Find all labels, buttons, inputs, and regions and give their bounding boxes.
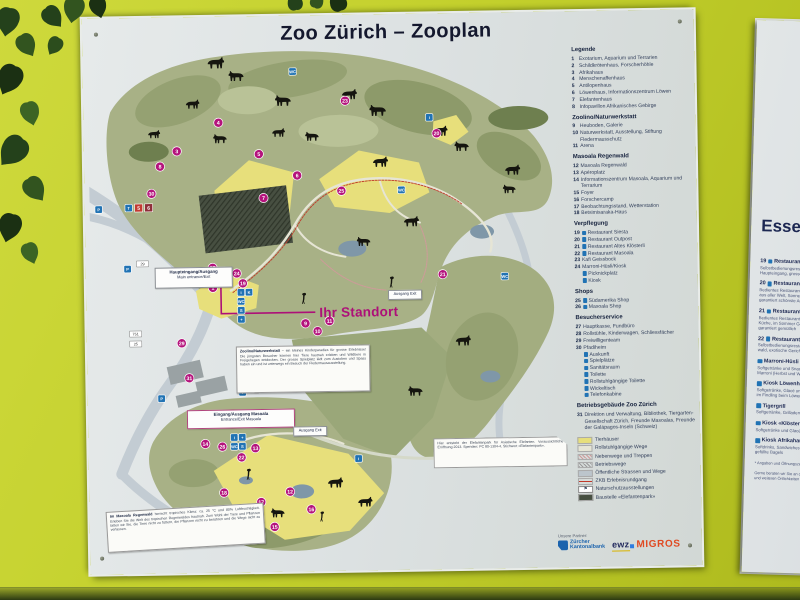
legend-item-label: Telefonkabine (590, 391, 698, 399)
side-sign-item-icon (766, 336, 771, 341)
legend-item: 14Informationszentrum Masoala, Aquarium … (573, 175, 694, 190)
map-marker-number: 25 (338, 189, 344, 195)
legend-item: Kiosk (575, 276, 696, 284)
legend-item-number: 30 (576, 345, 584, 351)
legend-item-number: 31 (577, 412, 585, 418)
map-marker-29: 29 (177, 339, 186, 348)
legend-item-number: 14 (573, 177, 581, 183)
legend-item-number: 9 (572, 123, 580, 129)
legend-item-icon (584, 372, 589, 377)
map-marker-number: 4 (217, 121, 220, 127)
swatch-icon-chip: ⚑ (578, 486, 593, 493)
legend-item-number: 15 (573, 190, 581, 196)
map-marker-26: 26 (218, 442, 227, 451)
legend-swatch-label: Nebenwege und Treppen (595, 452, 699, 460)
side-sign-item-desc: Softdrinks, Sandwiches und gefüllte Bage… (755, 444, 800, 458)
ewz-logo: ewz (612, 539, 630, 549)
legend-item-number: 11 (573, 143, 581, 149)
legend-item-number: 3 (572, 70, 580, 76)
legend-swatch-row: ⚑Naturschutzausstellungen (578, 484, 699, 492)
map-marker-number: 12 (287, 489, 293, 495)
map-marker-number: 7 (262, 196, 265, 202)
map-marker-number: 8 (159, 165, 162, 171)
side-sign-item-icon (768, 259, 773, 264)
legend-swatch-row: Betriebswege (578, 460, 699, 468)
side-sign-item-icon (756, 421, 761, 426)
exit-label: Ausgang Exit (388, 290, 422, 301)
side-sign-graphic (769, 38, 800, 222)
side-sign-item-desc: Softgetränke und Snacks, Marroni (Herbst… (757, 365, 800, 379)
legend-section-heading: Legende (571, 45, 692, 54)
ivy-cluster (0, 0, 109, 267)
map-marker-24: 24 (232, 269, 241, 278)
swatch-fill-chip (578, 494, 593, 501)
map-service-icon: i (237, 289, 245, 297)
map-service-icon: S (238, 307, 246, 315)
map-service-icon: WC (398, 186, 406, 194)
legend-item-number: 8 (572, 104, 580, 110)
map-service-icon-glyph: WC (398, 187, 405, 192)
map-service-icon-glyph: P (160, 396, 163, 401)
map-service-icon: i (231, 434, 239, 442)
ewz-logo-text: ewz (612, 539, 630, 549)
legend-item: 26Masoala Shop (575, 303, 696, 311)
map-white-tag-label: 25 (134, 342, 138, 346)
map-service-icon-glyph: WC (231, 444, 238, 449)
legend-section-heading: Shops (575, 287, 696, 296)
grass-strip (0, 587, 800, 600)
map-service-icon-glyph: i (358, 456, 359, 461)
map-service-icon-glyph: i (429, 115, 430, 120)
legend-item-number: 17 (574, 204, 582, 210)
side-sign-item-desc: Selbstbedienungsrestaurant am Regen- wal… (758, 342, 800, 356)
map-marker-25: 25 (337, 186, 346, 195)
your-location-label: Ihr Standort (319, 304, 398, 320)
legend-swatches: TierhäuserRollstuhlgängige WegeNebenwege… (577, 435, 699, 501)
map-marker-21: 21 (438, 270, 447, 279)
legend-item-number: 18 (574, 210, 582, 216)
legend-item-label: Informationszentrum Masoala, Aquarium un… (581, 175, 695, 189)
map-service-icon: K (245, 288, 253, 296)
zoo-map: PPPTiWCS+KiWC+SWCWCiiiWC56297512519 1234… (87, 35, 573, 554)
main-entrance-label: Haupteingang/Ausgang Main entrance/Exit (155, 267, 233, 289)
legend-item-icon (582, 271, 587, 276)
legend-item: 8Infopavillon Afrikanisches Gebirge (572, 102, 693, 110)
side-sign-item: 21Restaurant Altes KlösterliBedientes Re… (758, 308, 800, 334)
side-sign-item: Marroni-HüsliSoftgetränke und Snacks, Ma… (757, 358, 800, 379)
side-sign-item-desc: Bedientes Restaurant mit Spezialitäten a… (759, 287, 800, 306)
legend-swatch-label: Tierhäuser (595, 436, 699, 444)
map-marker-number: 14 (202, 442, 208, 448)
legend-item-number: 6 (572, 90, 580, 96)
legend-item-icon (583, 305, 588, 310)
map-marker-4: 4 (214, 118, 223, 127)
side-sign-item: 20Restaurant OutpostBedientes Restaurant… (759, 281, 800, 307)
map-marker-number: 3 (175, 149, 178, 155)
side-sign-item-title: Tigergrill (763, 403, 786, 410)
map-marker-number: 9 (304, 321, 307, 327)
legend-item-label: Direktion und Verwaltung, Bibliothek, Ti… (584, 410, 698, 431)
zkb-logo-icon (558, 540, 568, 550)
zoolino-note: Zoolino/Naturwerkstatt – ein kleines Kin… (236, 344, 371, 393)
legend-item-icon (584, 393, 589, 398)
legend-item-number: 22 (574, 251, 582, 257)
legend-item-number: 7 (572, 97, 580, 103)
map-service-icon-glyph: i (234, 435, 235, 440)
legend-swatch-label: Naturschutzausstellungen (596, 485, 700, 493)
legend-swatch-row: ZKB Erlebnisrundgang (578, 476, 699, 484)
side-sign-items: 19Restaurant SiestaSelbstbedienungsresta… (754, 258, 800, 484)
masoala-entrance-label: Eingang/Ausgang Masoala Entrance/Exit Ma… (187, 409, 295, 430)
legend-item-number: 21 (574, 244, 582, 250)
legend-section-heading: Betriebsgebäude Zoo Zürich (577, 402, 698, 411)
legend-item-icon (584, 386, 589, 391)
ivy-leaves (0, 0, 150, 280)
legend-item-icon (583, 298, 588, 303)
swatch-fill-chip (577, 437, 592, 444)
legend-item: 31Direktion und Verwaltung, Bibliothek, … (577, 410, 698, 431)
map-service-icon-glyph: WC (289, 69, 296, 74)
legend-item-label: Infopavillon Afrikanisches Gebirge (580, 102, 694, 110)
screw (100, 557, 104, 561)
map-white-tag: 25 (130, 341, 142, 347)
legend-swatch-row: Rollstuhlgängige Wege (577, 444, 698, 452)
legend-item-label: Kiosk (588, 276, 696, 284)
map-service-icon-glyph: S (241, 444, 244, 449)
side-sign-item-icon (757, 381, 762, 386)
map-service-icon: WC (289, 68, 297, 76)
legend-item-number: 2 (571, 63, 579, 69)
legend-item-icon (584, 365, 589, 370)
legend-item-number: 24 (575, 264, 583, 270)
map-white-tag-label: 751 (132, 332, 138, 336)
zoo-map-canvas: PPPTiWCS+KiWC+SWCWCiiiWC56297512519 1234… (87, 35, 573, 554)
legend-swatch-row: Nebenwege und Treppen (578, 452, 699, 460)
legend-item-number: 1 (571, 56, 579, 62)
map-marker-6: 6 (292, 171, 301, 180)
map-marker-18: 18 (219, 488, 228, 497)
map-service-icon-glyph: WC (238, 299, 245, 304)
swatch-hatch-chip (578, 453, 593, 460)
legend-item: 11Arena (573, 142, 694, 150)
side-sign-item: Kiosk LöwenhausSoftgetränke, Glacé und S… (756, 380, 800, 401)
map-marker-15: 15 (270, 522, 279, 531)
legend-item-label: Naturwerkstatt, Ausstellung, Stiftung Fl… (580, 128, 694, 142)
legend-item-number: 28 (576, 331, 584, 337)
masoala-entrance-label-en: Entrance/Exit Masoala (188, 416, 294, 422)
legend-section-heading: Zoolino/Naturwerkstatt (572, 113, 693, 122)
swatch-line-chip (578, 478, 593, 485)
map-service-icon: i (426, 114, 434, 122)
map-marker-16: 16 (307, 505, 316, 514)
map-service-icon: + (239, 434, 247, 442)
legend-item-icon (582, 251, 587, 256)
legend-item-icon (582, 278, 587, 283)
migros-logo: MIGROS (636, 538, 680, 550)
side-sign-item-icon (756, 403, 761, 408)
legend-item-number: 13 (573, 170, 581, 176)
side-sign-item-icon (755, 438, 760, 443)
side-sign-item-title: Marroni-Hüsli (764, 358, 799, 365)
map-service-icon: P (158, 395, 166, 403)
legend-item-number: 23 (574, 257, 582, 263)
map-service-icon: + (238, 316, 246, 324)
legend-item-number: 12 (573, 163, 581, 169)
map-service-icon-glyph: S (240, 308, 243, 313)
legend-item-number: 16 (574, 197, 582, 203)
side-sign-item: 19Restaurant SiestaSelbstbedienungsresta… (760, 258, 800, 279)
legend-item-label: Betsimisaraka-Haus (581, 209, 695, 217)
map-service-icon-glyph: i (240, 290, 241, 295)
side-sign-item-icon (757, 359, 762, 364)
map-marker-number: 23 (342, 99, 348, 105)
map-marker-number: 15 (272, 525, 278, 531)
map-marker-5: 5 (254, 149, 263, 158)
elephant-park-note: Hier entsteht der Elefantenpark für Asia… (433, 436, 567, 468)
side-sign-item: Kiosk AfrikahausSoftdrinks, Sandwiches u… (755, 437, 800, 458)
map-white-tag: 751 (130, 331, 142, 337)
legend-section-heading: Verpflegung (574, 219, 695, 228)
map-marker-31: 31 (185, 374, 194, 383)
legend-section-heading: Masoala Regenwald (573, 152, 694, 161)
side-sign-item-number: 21 (759, 308, 765, 314)
construction-site (199, 185, 293, 253)
map-marker-number: 20 (434, 131, 440, 137)
map-service-icon: WC (231, 443, 239, 451)
side-sign-item-desc: Softgetränke, Grilladen und Snacks (756, 409, 800, 418)
legend-item-number: 5 (572, 83, 580, 89)
legend-swatch-row: Öffentliche Strassen und Wege (578, 468, 699, 476)
map-service-icon: WC (501, 272, 509, 280)
map-marker-14: 14 (201, 439, 210, 448)
map-marker-12: 12 (285, 487, 294, 496)
legend-item-icon (582, 244, 587, 249)
legend-item-label: Arena (580, 142, 694, 150)
map-marker-number: 10 (315, 329, 321, 335)
ivy-leaves-top (283, 0, 363, 20)
map-marker-number: 19 (240, 281, 246, 287)
legend-item-number: 25 (575, 298, 583, 304)
legend-item-icon (582, 237, 587, 242)
map-marker-number: 5 (257, 152, 260, 158)
legend-item-number: 27 (576, 324, 584, 330)
map-marker-19: 19 (238, 279, 247, 288)
map-marker-number: 26 (219, 445, 225, 451)
side-sign-item: Kiosk «Klösterli»Softgetränke und Glacé (755, 420, 800, 435)
map-marker-13: 13 (251, 443, 260, 452)
map-service-icon: i (355, 455, 363, 463)
map-service-icon: S (239, 443, 247, 451)
side-sign-item-number: 22 (758, 336, 764, 342)
side-sign-item-desc: Bedientes Restaurant mit bürgerlicher Kü… (758, 315, 800, 334)
swatch-fill-chip (578, 470, 593, 477)
map-marker-number: 24 (234, 271, 240, 277)
map-marker-3: 3 (172, 147, 181, 156)
side-sign-item: 22Restaurant MasoalaSelbstbedienungsrest… (758, 336, 800, 357)
screw (678, 19, 682, 23)
map-service-icon-glyph: K (248, 290, 251, 295)
zkb-logo-text: Zürcher Kantonalbank (570, 539, 605, 551)
side-sign-item-number: 19 (760, 258, 766, 264)
zoo-map-sign: Zoo Zürich – Zooplan (82, 9, 703, 575)
legend-section-heading: Besucherservice (575, 314, 696, 323)
legend-swatch-label: Öffentliche Strassen und Wege (595, 468, 699, 476)
map-marker-23: 23 (340, 96, 349, 105)
legend-swatch-label: Baustelle «Elefantenpark» (596, 493, 700, 501)
masoala-note-body: herrscht tropisches Klima: ca. 25 °C und… (110, 506, 260, 532)
legend-item-icon (584, 379, 589, 384)
legend-item-number: 19 (574, 230, 582, 236)
ewz-logo-square (630, 544, 634, 548)
map-marker-8: 8 (155, 162, 164, 171)
side-sign-item-desc: Selbstbedienungsrestaurant beim Hauptein… (760, 265, 800, 279)
map-marker-20: 20 (432, 129, 441, 138)
map-marker-number: 29 (179, 341, 185, 347)
map-marker-10: 10 (313, 327, 322, 336)
legend-item-number: 29 (576, 338, 584, 344)
legend-swatch-label: ZKB Erlebnisrundgang (595, 476, 699, 484)
map-marker-number: 6 (296, 173, 299, 179)
map-marker-7: 7 (259, 193, 268, 202)
side-sign-footnotes: * Angaben und Öffnungszeiten siehe Ausha… (754, 461, 800, 484)
map-marker-number: 31 (186, 376, 192, 382)
main-entrance-label-en: Main entrance/Exit (156, 274, 232, 280)
side-sign-item-title: Kiosk «Klösterli» (762, 420, 800, 427)
legend-item-number: 26 (575, 304, 583, 310)
legend: Legende1Exotarium, Aquarium und Terrarie… (571, 45, 699, 503)
legend-item-icon (584, 359, 589, 364)
swatch-hatch-chip (578, 462, 593, 469)
legend-item-icon (582, 230, 587, 235)
legend-item: 18Betsimisaraka-Haus (574, 209, 695, 217)
map-marker-number: 16 (308, 507, 314, 513)
side-sign-item-icon (767, 281, 772, 286)
map-marker-22: 22 (237, 453, 246, 462)
side-sign-item-number: 20 (760, 281, 766, 287)
legend-swatch-row: Tierhäuser (577, 435, 698, 443)
legend-swatch-label: Rollstuhlgängige Wege (595, 444, 699, 452)
legend-swatch-label: Betriebswege (595, 460, 699, 468)
legend-item-number: 4 (572, 76, 580, 82)
map-service-icon-glyph: WC (501, 274, 508, 279)
side-sign-item-desc: Softgetränke und Glacé (755, 427, 800, 436)
map-marker-number: 13 (253, 446, 259, 452)
side-sign-heading: Essen und Trinken (761, 216, 800, 240)
map-service-icon: WC (237, 298, 245, 306)
legend-item-number: 20 (574, 237, 582, 243)
legend-item: Telefonkabine (577, 391, 698, 399)
legend-item-number: 10 (572, 130, 580, 136)
map-marker-number: 22 (239, 455, 245, 461)
swatch-fill-chip (577, 445, 592, 452)
partners: Unsere Partner: Zürcher Kantonalbank ewz… (558, 531, 704, 551)
side-sign-item-icon (766, 309, 771, 314)
zkb-line2: Kantonalbank (570, 544, 605, 551)
legend-swatch-row: Baustelle «Elefantenpark» (578, 493, 699, 501)
map-marker-9: 9 (301, 319, 310, 328)
side-sign: Essen und Trinken 19Restaurant SiestaSel… (742, 20, 800, 576)
exit-label: Ausgang Exit (293, 426, 327, 437)
side-sign-item-desc: Softgetränke, Glacé und Snacks im Findli… (756, 387, 800, 401)
map-marker-number: 21 (440, 272, 446, 278)
zkb-logo: Zürcher Kantonalbank (558, 539, 605, 551)
side-sign-item: TigergrillSoftgetränke, Grilladen und Sn… (756, 403, 800, 418)
legend-item-label: Masoala Shop (589, 303, 697, 311)
ewz-logo-bar (612, 550, 630, 551)
legend-item-icon (583, 352, 588, 357)
map-marker-number: 18 (221, 491, 227, 497)
legend-item: 10Naturwerkstatt, Ausstellung, Stiftung … (572, 128, 693, 143)
